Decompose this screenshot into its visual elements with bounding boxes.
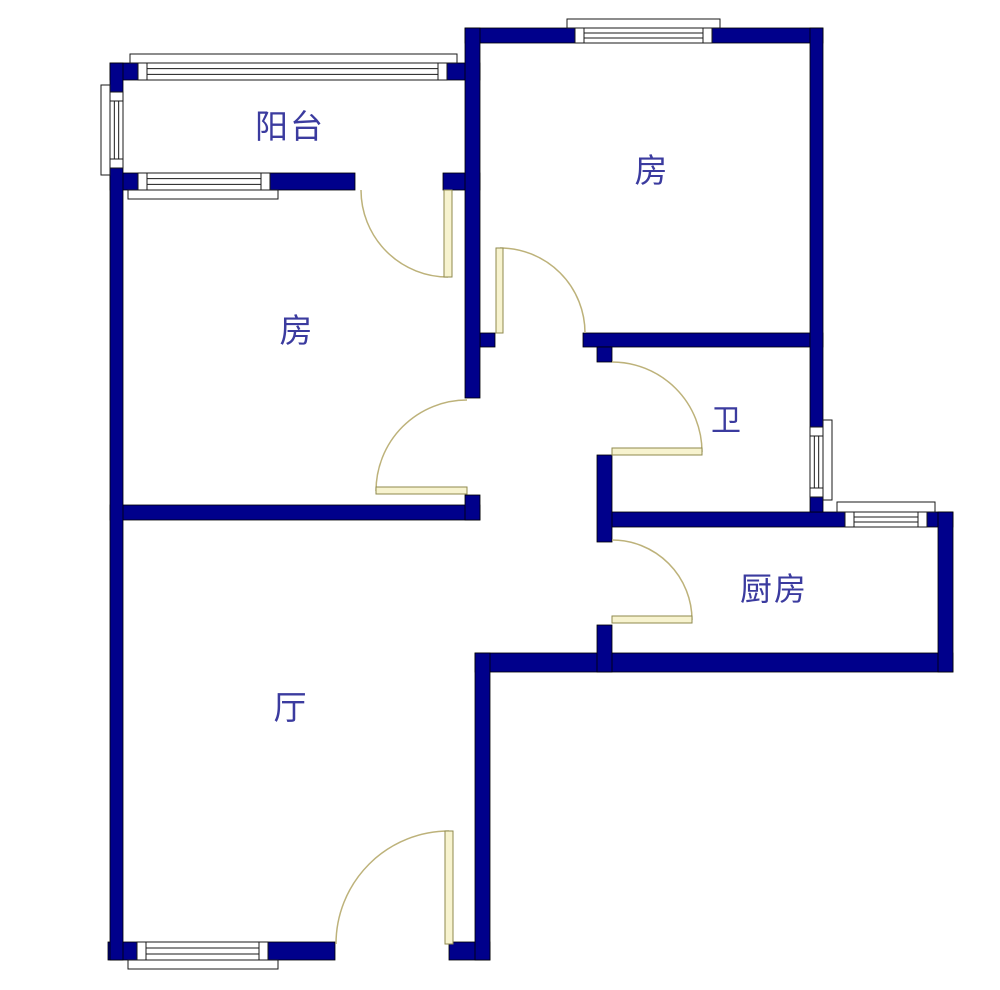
floorplan-page: 阳台 房 房 卫 厨房 厅 [0,0,1000,990]
doors-layer [336,190,702,944]
room-label-kitchen: 厨房 [740,571,808,607]
wall-segment [608,512,845,527]
room-label-bathroom: 卫 [711,405,743,438]
wall-segment [465,28,480,398]
wall-segment [480,333,495,347]
room-label-bedroom-left: 房 [280,313,315,350]
wall-segment [110,63,123,92]
wall-segment [110,505,480,520]
labels-layer: 阳台 房 房 卫 厨房 厅 [255,109,808,727]
window-symbol [101,85,123,175]
door-swing-arc [500,248,585,333]
door-leaf [612,616,692,623]
wall-segment [475,653,490,960]
door-leaf [612,448,702,455]
wall-segment [268,942,335,960]
door-leaf [376,487,467,494]
room-label-living-room: 厅 [274,691,309,727]
window-symbol [810,420,832,500]
door-swing-arc [612,362,702,452]
room-label-balcony: 阳台 [255,109,325,146]
door-swing-arc [612,540,692,620]
door-leaf [445,831,453,944]
door-leaf [496,248,503,333]
wall-segment [110,168,123,960]
door-leaf [444,190,452,277]
wall-segment [938,512,953,672]
wall-segment [597,455,612,542]
window-symbol [128,942,278,969]
window-symbol [567,19,720,43]
wall-segment [597,625,612,672]
door-swing-arc [376,400,467,491]
wall-segment [475,653,953,672]
window-symbol [837,502,935,527]
wall-segment [712,28,823,43]
wall-segment [597,347,612,362]
wall-segment [270,173,355,190]
room-label-bedroom-topright: 房 [635,153,670,190]
wall-segment [583,333,823,347]
window-symbol [130,54,457,80]
wall-segment [465,28,575,43]
door-swing-arc [336,831,449,944]
window-symbol [128,173,278,199]
wall-segment [810,497,823,512]
door-swing-arc [361,190,448,277]
wall-segment [465,495,480,520]
floorplan-svg: 阳台 房 房 卫 厨房 厅 [0,0,1000,990]
wall-segment [810,28,823,427]
